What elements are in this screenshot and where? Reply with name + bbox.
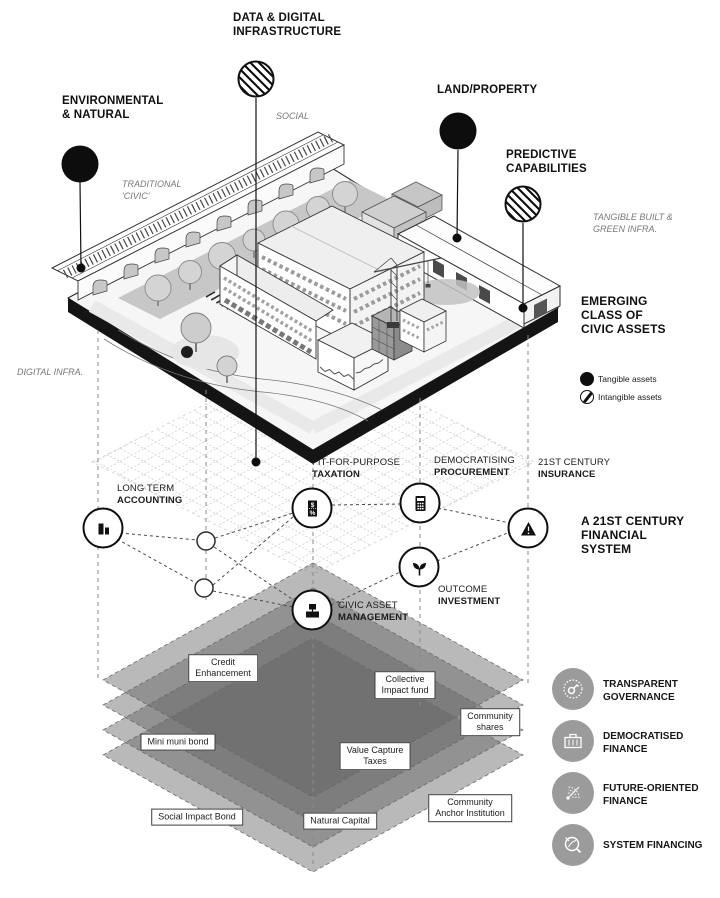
label-tangible-built: TANGIBLE BUILT & GREEN INFRA. [593,211,673,235]
label-land-property: LAND/PROPERTY [437,84,537,98]
mechanism-community-anchor: CommunityAnchor Institution [428,794,512,822]
warning-triangle-icon [516,516,540,540]
tangible-asset-marker-land [440,113,477,150]
procurement-node [400,483,441,524]
mechanism-community-shares: Communityshares [460,708,520,736]
label-civic-asset-management: CIVIC ASSET MANAGEMENT [338,600,408,623]
mechanism-collective-impact-fund: CollectiveImpact fund [374,671,435,699]
mechanism-value-capture-taxes: Value CaptureTaxes [340,742,411,770]
democratised-finance-badge [552,720,594,762]
intangible-asset-marker-predictive [505,186,542,223]
label-social: SOCIAL [276,110,309,122]
transparent-governance-badge [552,668,594,710]
taxation-node: $ % [292,488,333,529]
label-future-oriented-finance: FUTURE-ORIENTED FINANCE [603,782,699,808]
calculator-icon [408,491,432,515]
heading-emerging-class: EMERGING CLASS OF CIVIC ASSETS [581,294,666,336]
briefcase-icon [560,728,586,754]
radar-fan-icon [560,780,586,806]
civic-assets-diagram: ENVIRONMENTAL & NATURAL DATA & DIGITAL I… [0,0,720,898]
tangible-legend-icon [580,372,594,386]
label-democratised-finance: DEMOCRATISED FINANCE [603,730,683,756]
label-predictive-capabilities: PREDICTIVE CAPABILITIES [506,149,587,176]
junction-nodes [195,532,215,597]
building-blocks-icon [300,598,324,622]
label-outcome-investment: OUTCOME INVESTMENT [438,584,500,607]
label-long-term-accounting: LONG TERM ACCOUNTING [117,483,182,506]
bar-chart-icon [91,516,115,540]
magnifier-sprout-icon [560,832,586,858]
heading-financial-system: A 21ST CENTURY FINANCIAL SYSTEM [581,514,684,556]
civic-asset-management-node [292,590,333,631]
intangible-legend-icon [580,390,594,404]
label-traditional-civic: TRADITIONAL 'CIVIC' [122,178,182,202]
label-fit-for-purpose-taxation: FIT-FOR-PURPOSE TAXATION [312,457,400,480]
mechanism-credit-enhancement: CreditEnhancement [188,654,258,682]
label-data-digital: DATA & DIGITAL INFRASTRUCTURE [233,12,341,39]
sprout-icon [407,555,431,579]
label-environmental-natural: ENVIRONMENTAL & NATURAL [62,95,163,122]
svg-text:%: % [309,510,315,517]
label-transparent-governance: TRANSPARENT GOVERNANCE [603,678,678,704]
coin-key-icon [560,676,586,702]
system-financing-badge [552,824,594,866]
intangible-asset-marker-data [238,61,275,98]
label-21st-century-insurance: 21ST CENTURY INSURANCE [538,457,610,480]
label-digital-infra: DIGITAL INFRA. [17,366,83,378]
tangible-asset-marker-environmental [62,146,99,183]
mechanism-mini-muni-bond: Mini muni bond [140,734,215,751]
svg-text:$: $ [310,502,314,509]
mechanism-natural-capital: Natural Capital [303,813,377,830]
future-oriented-finance-badge [552,772,594,814]
legend-intangible-label: Intangible assets [598,392,662,402]
legend-tangible-label: Tangible assets [598,374,657,384]
tax-receipt-icon: $ % [300,496,324,520]
outcome-node [399,547,440,588]
mechanism-social-impact-bond: Social Impact Bond [151,809,243,826]
insurance-node [508,508,549,549]
accounting-node [83,508,124,549]
label-democratising-procurement: DEMOCRATISING PROCUREMENT [434,455,515,478]
label-system-financing: SYSTEM FINANCING [603,839,702,852]
